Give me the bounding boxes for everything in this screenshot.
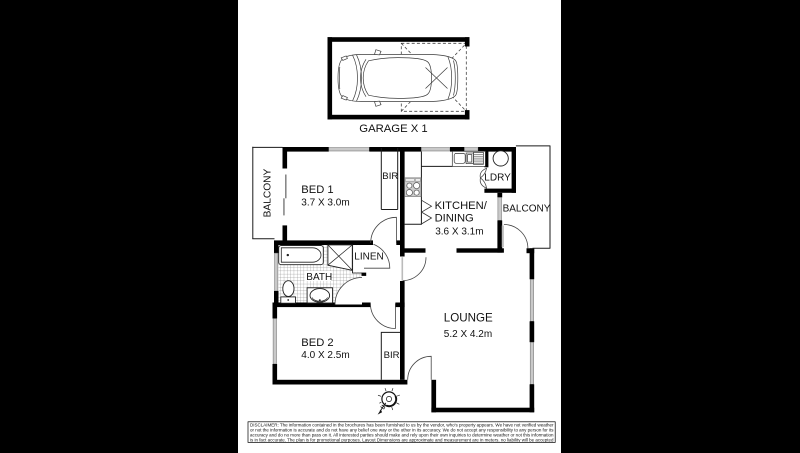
svg-text:BED 2: BED 2 (301, 337, 333, 349)
svg-text:BALCONY: BALCONY (503, 204, 551, 215)
svg-text:is in fact accurate. The plan: is in fact accurate. The plan is for pro… (250, 438, 554, 443)
svg-text:4.0 X 2.5m: 4.0 X 2.5m (301, 350, 349, 361)
svg-text:5.2 X 4.2m: 5.2 X 4.2m (444, 329, 492, 340)
svg-text:BATH: BATH (306, 272, 332, 283)
svg-text:DINING: DINING (435, 213, 474, 225)
svg-text:BIR: BIR (382, 171, 398, 182)
svg-text:GARAGE X 1: GARAGE X 1 (359, 123, 427, 135)
svg-text:3.7 X 3.0m: 3.7 X 3.0m (301, 197, 349, 208)
svg-text:BALCONY: BALCONY (263, 168, 274, 217)
svg-text:KITCHEN/: KITCHEN/ (435, 200, 488, 212)
svg-text:LOUNGE: LOUNGE (444, 311, 493, 324)
svg-text:LDRY: LDRY (484, 173, 511, 184)
svg-text:LINEN: LINEN (354, 252, 383, 263)
svg-text:BED 1: BED 1 (301, 184, 333, 196)
svg-text:3.6 X 3.1m: 3.6 X 3.1m (435, 227, 483, 238)
svg-text:BIR: BIR (384, 350, 400, 361)
